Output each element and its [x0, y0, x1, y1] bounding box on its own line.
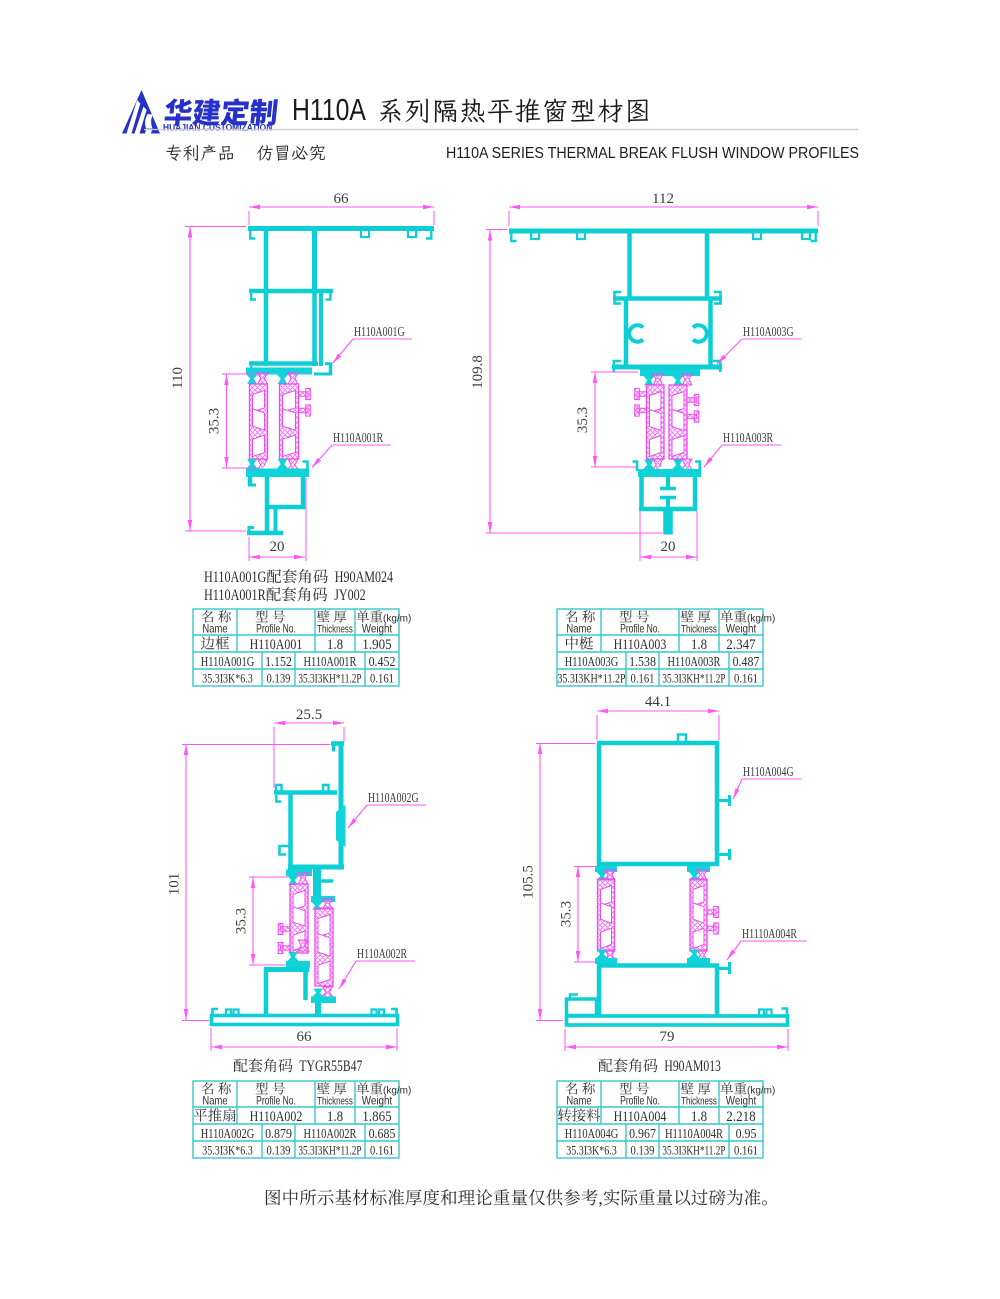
svg-text:H110A002R: H110A002R	[357, 947, 408, 962]
svg-text:1.8: 1.8	[691, 637, 707, 653]
svg-text:79: 79	[660, 1029, 675, 1045]
svg-text:0.161: 0.161	[370, 672, 394, 686]
svg-text:35.3: 35.3	[234, 908, 250, 934]
svg-text:0.161: 0.161	[370, 1144, 394, 1158]
svg-text:0.452: 0.452	[369, 655, 396, 670]
svg-text:35.3I3KH*11.2P: 35.3I3KH*11.2P	[298, 672, 361, 686]
svg-text:35.3I3KH*11.2P: 35.3I3KH*11.2P	[662, 1144, 725, 1158]
svg-text:,: ,	[598, 1188, 602, 1208]
svg-text:Name: Name	[202, 622, 228, 636]
svg-text:0.139: 0.139	[267, 672, 291, 686]
svg-text:H110A004G: H110A004G	[743, 765, 794, 780]
svg-text:0.139: 0.139	[631, 1144, 655, 1158]
svg-text:Profile No.: Profile No.	[256, 622, 296, 636]
svg-text:20: 20	[661, 539, 676, 555]
svg-text:JY002: JY002	[334, 585, 366, 604]
svg-text:H110A001R: H110A001R	[333, 431, 384, 446]
svg-text:0.879: 0.879	[265, 1127, 292, 1142]
svg-text:H110A001R: H110A001R	[304, 655, 357, 670]
svg-text:0.95: 0.95	[736, 1127, 757, 1142]
svg-text:H110A: H110A	[292, 92, 366, 127]
svg-text:35.3I3K*6.3: 35.3I3K*6.3	[566, 1144, 617, 1158]
svg-text:H1110A004R: H1110A004R	[665, 1127, 724, 1142]
svg-text:110: 110	[170, 367, 186, 389]
svg-text:Profile No.: Profile No.	[256, 1094, 296, 1108]
svg-text:H110A001: H110A001	[250, 637, 303, 653]
svg-text:H110A001G: H110A001G	[204, 567, 266, 586]
svg-text:H1110A004R: H1110A004R	[742, 927, 797, 942]
svg-text:35.3I3K*6.3: 35.3I3K*6.3	[202, 672, 253, 686]
svg-text:Name: Name	[566, 622, 592, 636]
svg-text:2.218: 2.218	[726, 1109, 755, 1125]
svg-text:35.3: 35.3	[207, 408, 223, 434]
svg-text:0.139: 0.139	[267, 1144, 291, 1158]
svg-text:H110A002: H110A002	[250, 1109, 303, 1125]
svg-text:2.347: 2.347	[726, 637, 755, 653]
svg-text:H90AM013: H90AM013	[664, 1058, 721, 1075]
svg-text:H110A001R: H110A001R	[204, 585, 266, 604]
svg-text:105.5: 105.5	[521, 865, 537, 899]
svg-text:H90AM024: H90AM024	[335, 567, 393, 586]
svg-text:44.1: 44.1	[645, 694, 671, 710]
svg-text:109.8: 109.8	[470, 355, 486, 389]
svg-text:H110A SERIES THERMAL BREAK FLU: H110A SERIES THERMAL BREAK FLUSH WINDOW …	[446, 145, 859, 162]
svg-text:Weight: Weight	[362, 1096, 393, 1108]
svg-text:1.8: 1.8	[327, 637, 343, 653]
svg-text:H110A003G: H110A003G	[565, 655, 619, 670]
svg-text:Weight: Weight	[362, 624, 393, 636]
svg-text:Name: Name	[566, 1094, 592, 1108]
svg-text:66: 66	[334, 191, 350, 207]
svg-text:Name: Name	[202, 1094, 228, 1108]
svg-text:1.538: 1.538	[629, 655, 656, 670]
svg-text:35.3I3KH*11.2P: 35.3I3KH*11.2P	[662, 672, 725, 686]
svg-text:0.161: 0.161	[631, 672, 655, 686]
svg-text:Thickness: Thickness	[317, 624, 353, 636]
svg-text:0.487: 0.487	[733, 655, 760, 670]
svg-text:H110A004: H110A004	[614, 1109, 667, 1125]
svg-text:Thickness: Thickness	[681, 624, 717, 636]
svg-text:35.3: 35.3	[559, 901, 575, 927]
svg-text:Weight: Weight	[726, 1096, 757, 1108]
svg-text:H110A002G: H110A002G	[201, 1127, 255, 1142]
svg-text:HUAJIAN CUSTOMIZATION: HUAJIAN CUSTOMIZATION	[163, 123, 272, 133]
svg-text:H110A003G: H110A003G	[743, 325, 794, 340]
svg-text:Profile No.: Profile No.	[620, 1094, 660, 1108]
svg-text:TYGR55B47: TYGR55B47	[299, 1058, 362, 1075]
svg-text:0.685: 0.685	[369, 1127, 396, 1142]
svg-text:101: 101	[167, 873, 183, 896]
svg-text:H110A004G: H110A004G	[565, 1127, 619, 1142]
svg-text:35.3I3KH*11.2P: 35.3I3KH*11.2P	[557, 672, 625, 686]
svg-text:35.3I3KH*11.2P: 35.3I3KH*11.2P	[298, 1144, 361, 1158]
svg-text:Thickness: Thickness	[681, 1096, 717, 1108]
svg-text:0.161: 0.161	[734, 672, 758, 686]
svg-text:25.5: 25.5	[296, 707, 322, 723]
svg-text:1.905: 1.905	[362, 637, 391, 653]
svg-text:0.967: 0.967	[629, 1127, 656, 1142]
svg-text:Profile No.: Profile No.	[620, 622, 660, 636]
svg-text:1.865: 1.865	[362, 1109, 391, 1125]
svg-text:1.152: 1.152	[265, 655, 292, 670]
svg-text:20: 20	[270, 539, 285, 555]
svg-text:H110A002R: H110A002R	[304, 1127, 357, 1142]
svg-text:35.3: 35.3	[575, 407, 591, 433]
svg-text:35.3I3K*6.3: 35.3I3K*6.3	[202, 1144, 253, 1158]
svg-text:66: 66	[297, 1029, 313, 1045]
svg-text:0.161: 0.161	[734, 1144, 758, 1158]
svg-text:Thickness: Thickness	[317, 1096, 353, 1108]
svg-text:1.8: 1.8	[327, 1109, 343, 1125]
svg-text:H110A001G: H110A001G	[354, 325, 405, 340]
svg-text:H110A001G: H110A001G	[201, 655, 255, 670]
svg-text:H110A003R: H110A003R	[668, 655, 721, 670]
svg-text:1.8: 1.8	[691, 1109, 707, 1125]
svg-text:H110A003: H110A003	[614, 637, 667, 653]
svg-text:H110A003R: H110A003R	[723, 431, 774, 446]
svg-text:H110A002G: H110A002G	[368, 791, 419, 806]
svg-text:Weight: Weight	[726, 624, 757, 636]
svg-text:112: 112	[652, 191, 674, 207]
